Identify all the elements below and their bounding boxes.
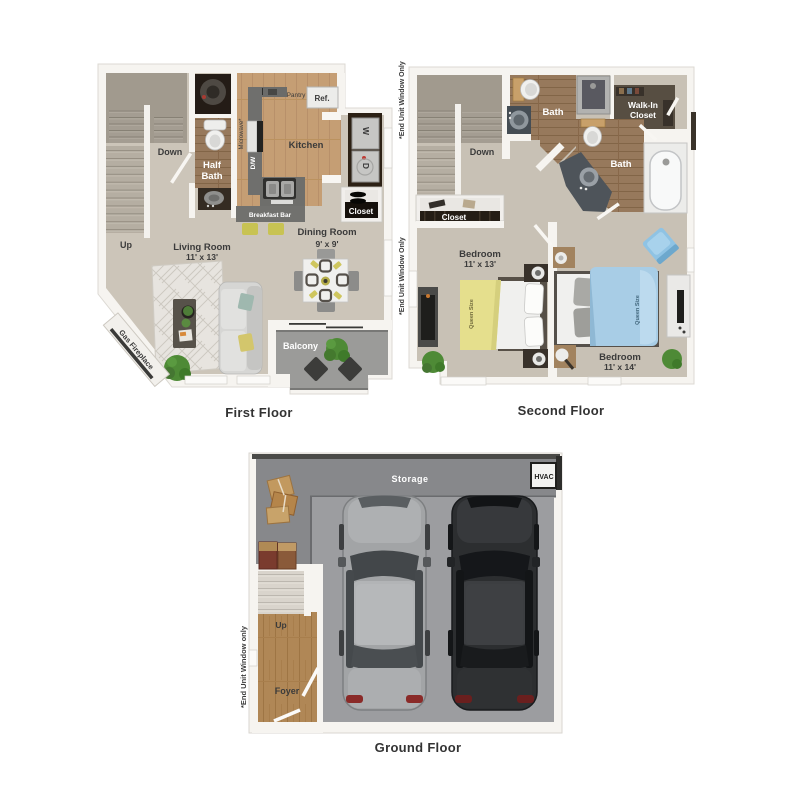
svg-text:Up: Up — [275, 620, 286, 630]
svg-text:Queen Size: Queen Size — [635, 295, 641, 325]
svg-text:Second Floor: Second Floor — [518, 403, 605, 418]
svg-text:Dining Room: Dining Room — [297, 227, 356, 238]
svg-text:Half: Half — [203, 160, 222, 171]
svg-text:Pantry: Pantry — [287, 92, 307, 99]
svg-text:*End Unit Window Only: *End Unit Window Only — [399, 61, 406, 139]
svg-text:9' x 9': 9' x 9' — [316, 239, 339, 249]
svg-text:Bath: Bath — [201, 171, 222, 182]
svg-text:*End Unit Window Only: *End Unit Window Only — [399, 237, 406, 315]
svg-text:11' x 13': 11' x 13' — [464, 259, 496, 269]
svg-text:Down: Down — [470, 147, 495, 157]
svg-text:Ground Floor: Ground Floor — [375, 740, 462, 755]
svg-text:Down: Down — [158, 147, 183, 157]
svg-text:Bath: Bath — [542, 107, 563, 118]
svg-text:11' x 13': 11' x 13' — [186, 252, 218, 262]
svg-text:Storage: Storage — [391, 474, 428, 484]
svg-text:Closet: Closet — [442, 213, 467, 222]
svg-text:Foyer: Foyer — [275, 686, 300, 696]
svg-text:W: W — [361, 127, 371, 136]
svg-text:Closet: Closet — [630, 110, 656, 120]
svg-text:Walk-In: Walk-In — [628, 100, 658, 110]
svg-text:*End Unit Window only: *End Unit Window only — [239, 625, 248, 708]
svg-text:Up: Up — [120, 240, 132, 250]
svg-text:Breakfast Bar: Breakfast Bar — [249, 212, 292, 219]
svg-text:HVAC: HVAC — [534, 474, 553, 481]
svg-text:Balcony: Balcony — [283, 341, 318, 351]
svg-text:11' x 14': 11' x 14' — [604, 362, 636, 372]
svg-text:Ref.: Ref. — [314, 94, 329, 103]
svg-text:D/W: D/W — [250, 156, 257, 170]
svg-text:Microwave*: Microwave* — [239, 118, 245, 150]
svg-text:Queen Size: Queen Size — [469, 299, 475, 329]
svg-text:Kitchen: Kitchen — [289, 140, 324, 151]
svg-text:D: D — [361, 163, 371, 169]
svg-text:Closet: Closet — [349, 207, 374, 216]
svg-text:First Floor: First Floor — [225, 405, 293, 420]
svg-text:Bath: Bath — [610, 159, 631, 170]
